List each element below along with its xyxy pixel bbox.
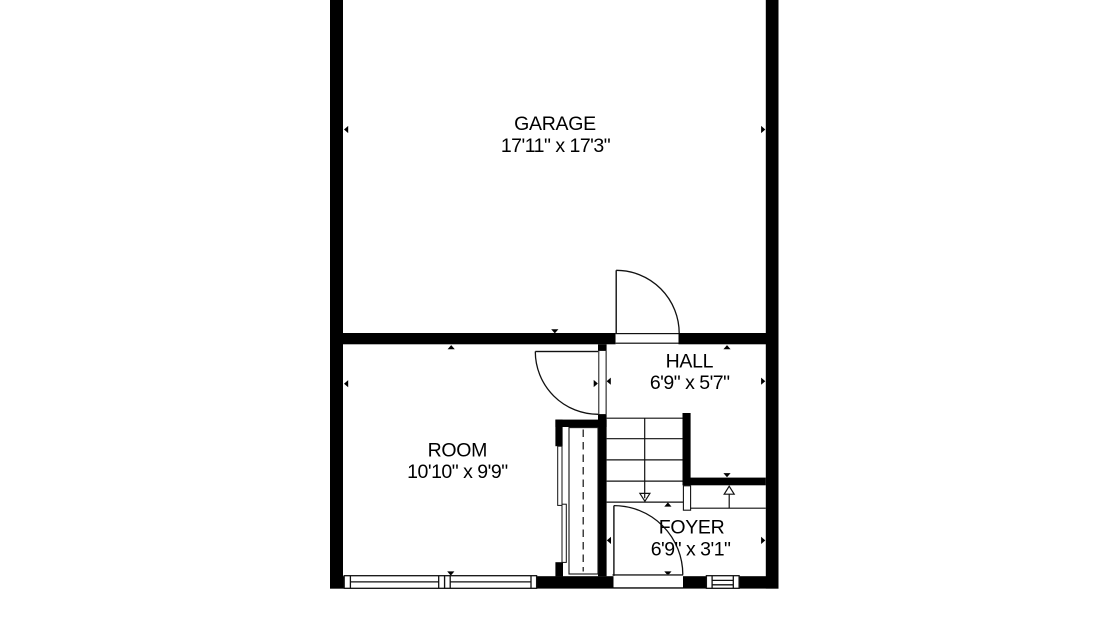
svg-text:HALL: HALL [666, 350, 714, 372]
svg-text:6'9" x 5'7": 6'9" x 5'7" [650, 372, 730, 394]
svg-text:FOYER: FOYER [659, 517, 725, 539]
svg-text:GARAGE: GARAGE [514, 113, 596, 135]
svg-text:ROOM: ROOM [428, 439, 487, 461]
svg-text:10'10" x 9'9": 10'10" x 9'9" [407, 461, 508, 483]
svg-text:6'9" x 3'1": 6'9" x 3'1" [651, 539, 731, 561]
svg-text:17'11" x 17'3": 17'11" x 17'3" [501, 135, 611, 157]
